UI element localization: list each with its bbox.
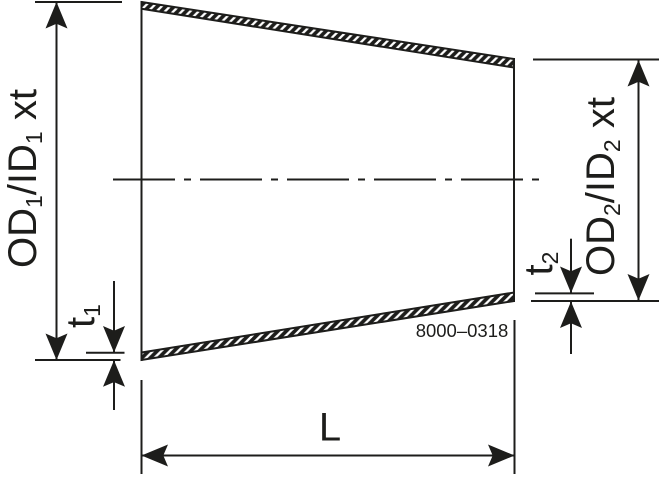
svg-text:OD2/ID2 xt: OD2/ID2 xt: [579, 97, 625, 276]
svg-text:8000–0318: 8000–0318: [416, 320, 509, 341]
svg-text:L: L: [319, 406, 341, 450]
svg-text:OD1/ID1 xt: OD1/ID1 xt: [1, 89, 47, 268]
